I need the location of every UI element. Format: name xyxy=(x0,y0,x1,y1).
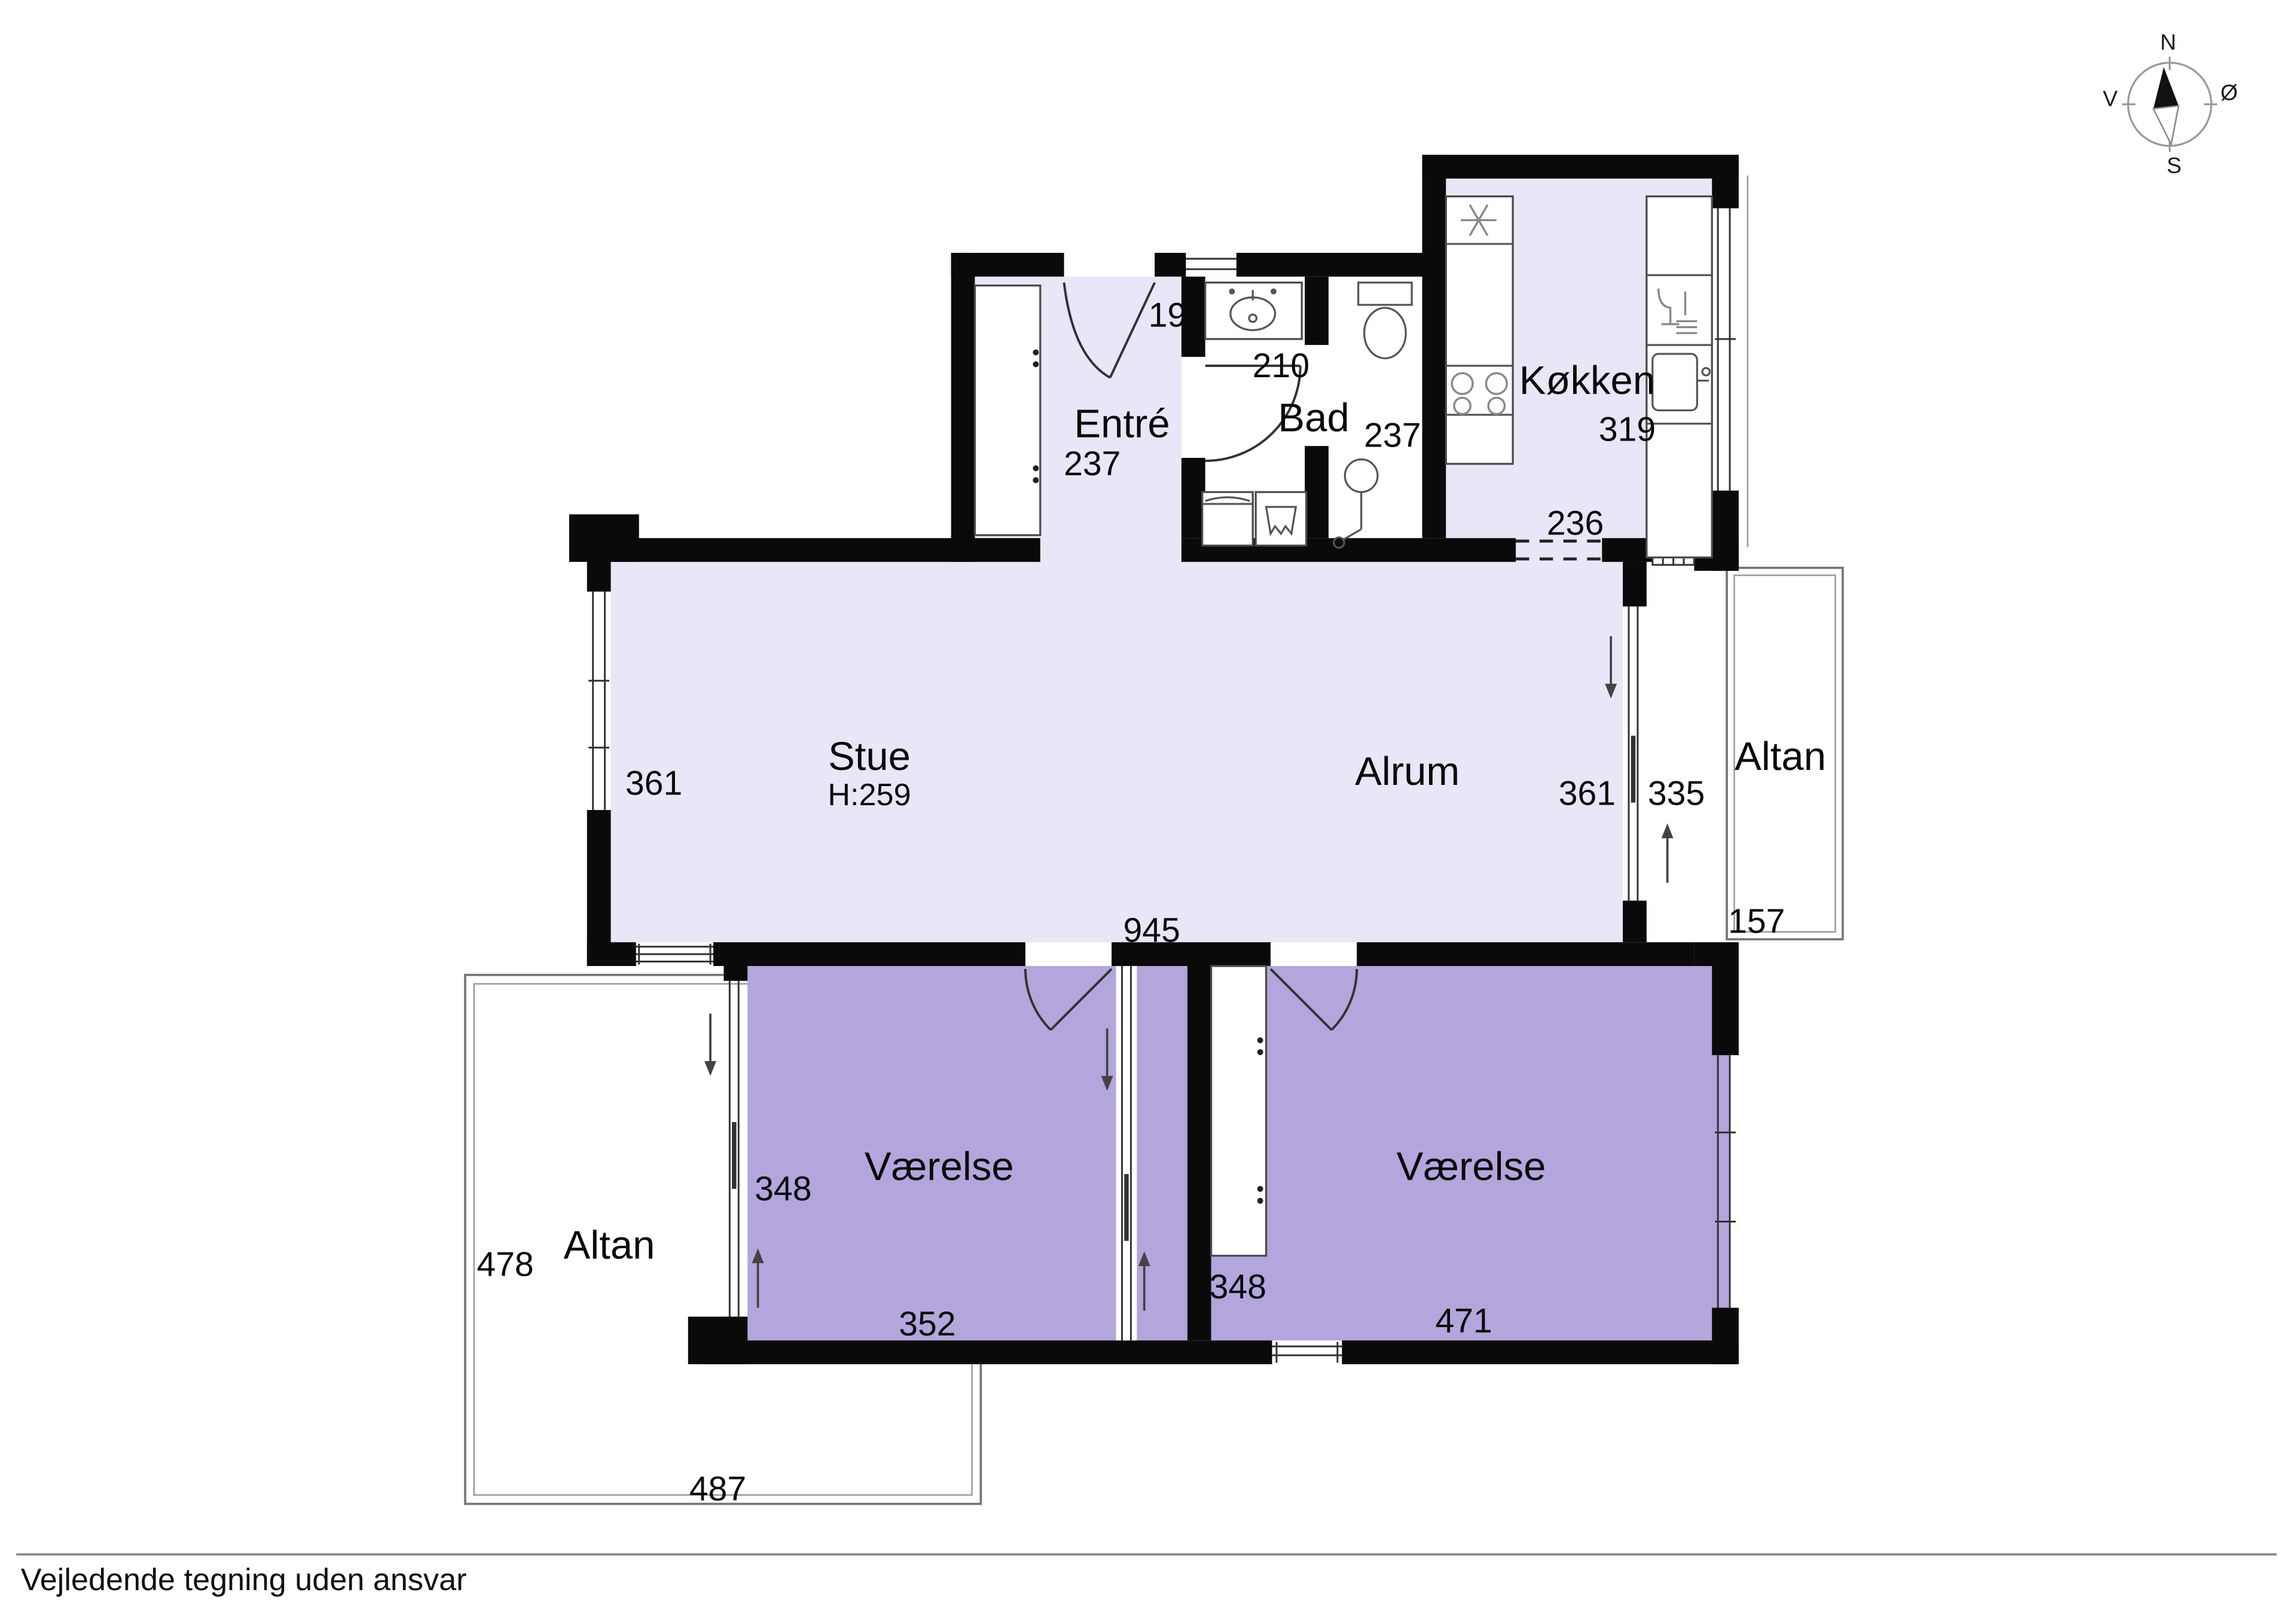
room-label-bad: Bad xyxy=(1278,395,1349,440)
window-stue-west xyxy=(588,592,609,810)
dim-stue-height: H:259 xyxy=(828,778,911,812)
room-floors xyxy=(611,179,1730,1341)
dim-kokken-319: 319 xyxy=(1599,411,1656,449)
room-label-altan-east: Altan xyxy=(1735,734,1826,779)
dim-stue-361: 361 xyxy=(625,764,682,802)
kitchen-counter-east xyxy=(1647,197,1712,558)
window-vaerelse-south xyxy=(1272,1342,1342,1363)
room-label-alrum: Alrum xyxy=(1355,749,1460,794)
dim-alrum-361: 361 xyxy=(1559,775,1616,813)
dim-vaerelse-east-471: 471 xyxy=(1435,1302,1492,1340)
room-label-vaerelse-east: Værelse xyxy=(1397,1144,1546,1189)
window-stue-south xyxy=(636,944,713,965)
kitchen-counter-west xyxy=(1446,197,1513,464)
dim-altan-west-487: 487 xyxy=(689,1470,746,1508)
compass-label-north: N xyxy=(2160,29,2176,54)
compass-label-west: V xyxy=(2103,85,2118,111)
arrow-altan-east-up xyxy=(1662,823,1674,882)
dim-entre-199: 199 xyxy=(1149,296,1205,334)
floor-stue-alrum xyxy=(611,562,1623,942)
sliding-door-between-bedrooms xyxy=(1116,966,1137,1340)
floor-entre-opening xyxy=(1040,538,1181,562)
sliding-door-alrum-altan xyxy=(1629,607,1638,901)
dim-altan-east-335: 335 xyxy=(1648,775,1705,813)
dryer-icon xyxy=(1256,492,1306,545)
sink-icon xyxy=(1205,283,1302,339)
room-label-stue: Stue xyxy=(828,734,911,779)
washing-machine-icon xyxy=(1202,492,1253,545)
floor-plan-svg: Entré 199 237 Bad 210 237 Køkken 319 236… xyxy=(0,0,2296,1623)
room-label-kokken: Køkken xyxy=(1519,358,1655,403)
compass-needle-south xyxy=(2153,106,2178,145)
compass-label-east: Ø xyxy=(2221,80,2238,105)
footer: Vejledende tegning uden ansvar xyxy=(16,1554,2276,1597)
room-label-vaerelse-west: Værelse xyxy=(865,1144,1014,1189)
closet-vaerelse-east xyxy=(1211,966,1266,1256)
floor-plan-page: Entré 199 237 Bad 210 237 Køkken 319 236… xyxy=(0,0,2296,1623)
room-label-entre: Entré xyxy=(1074,401,1170,446)
dim-altan-east-157: 157 xyxy=(1728,902,1785,940)
dim-entre-237: 237 xyxy=(1064,445,1120,483)
dim-vaerelse-east-348: 348 xyxy=(1210,1268,1266,1306)
dim-bad-237: 237 xyxy=(1364,417,1421,455)
dim-vaerelse-west-352: 352 xyxy=(899,1305,955,1343)
window-entre-top xyxy=(1186,259,1236,269)
compass-needle-north xyxy=(2153,67,2178,109)
room-label-altan-west: Altan xyxy=(564,1223,655,1268)
dim-kokken-236: 236 xyxy=(1547,504,1604,542)
closet-entre xyxy=(975,286,1040,536)
compass: N Ø S V xyxy=(2103,29,2238,178)
footer-disclaimer: Vejledende tegning uden ansvar xyxy=(21,1563,467,1597)
dim-alrum-945: 945 xyxy=(1123,911,1180,949)
dim-bad-210: 210 xyxy=(1253,347,1309,385)
compass-label-south: S xyxy=(2167,152,2182,178)
dim-altan-west-478: 478 xyxy=(477,1246,533,1284)
dim-vaerelse-west-348: 348 xyxy=(755,1170,811,1208)
